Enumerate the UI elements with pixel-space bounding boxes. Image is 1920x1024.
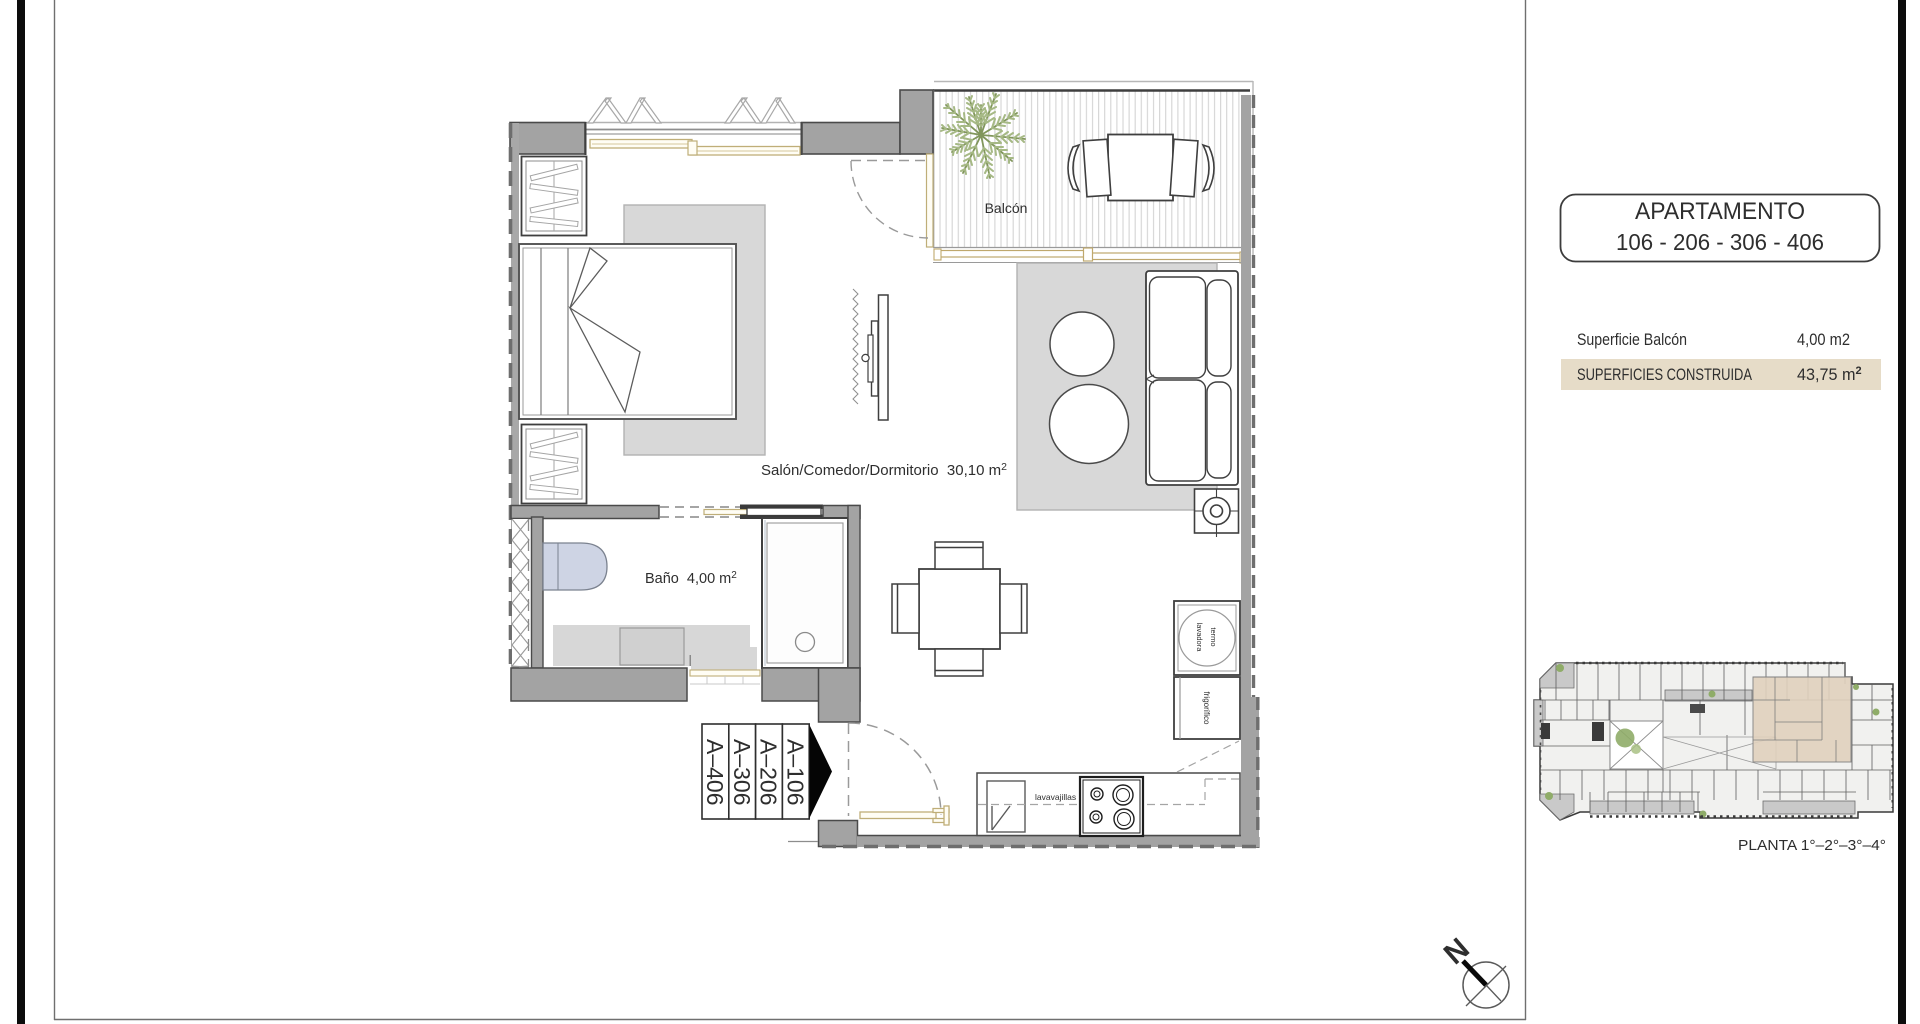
svg-text:SUPERFICIES CONSTRUIDA: SUPERFICIES CONSTRUIDA	[1577, 366, 1752, 384]
svg-text:Baño 4,00 m2: Baño 4,00 m2	[645, 570, 737, 587]
svg-text:Superficie Balcón: Superficie Balcón	[1577, 331, 1687, 349]
svg-text:4,00 m2: 4,00 m2	[1797, 331, 1850, 349]
svg-text:A–406: A–406	[702, 739, 728, 806]
svg-text:APARTAMENTO: APARTAMENTO	[1635, 198, 1805, 225]
svg-text:lavadora: lavadora	[1195, 623, 1204, 653]
svg-text:106 - 206 - 306 - 406: 106 - 206 - 306 - 406	[1616, 229, 1824, 255]
svg-text:PLANTA 1°–2°–3°–4°: PLANTA 1°–2°–3°–4°	[1738, 838, 1886, 854]
svg-text:frigorífico: frigorífico	[1202, 692, 1211, 725]
svg-text:Balcón: Balcón	[985, 200, 1028, 216]
svg-text:termo: termo	[1209, 627, 1218, 646]
svg-text:lavavajillas: lavavajillas	[1035, 792, 1076, 802]
svg-text:A–106: A–106	[783, 739, 809, 806]
svg-text:Salón/Comedor/Dormitorio 30,1: Salón/Comedor/Dormitorio 30,10 m2	[761, 461, 1007, 479]
svg-text:A–206: A–206	[756, 739, 782, 806]
svg-text:A–306: A–306	[729, 739, 755, 806]
svg-text:43,75 m2: 43,75 m2	[1797, 365, 1862, 384]
